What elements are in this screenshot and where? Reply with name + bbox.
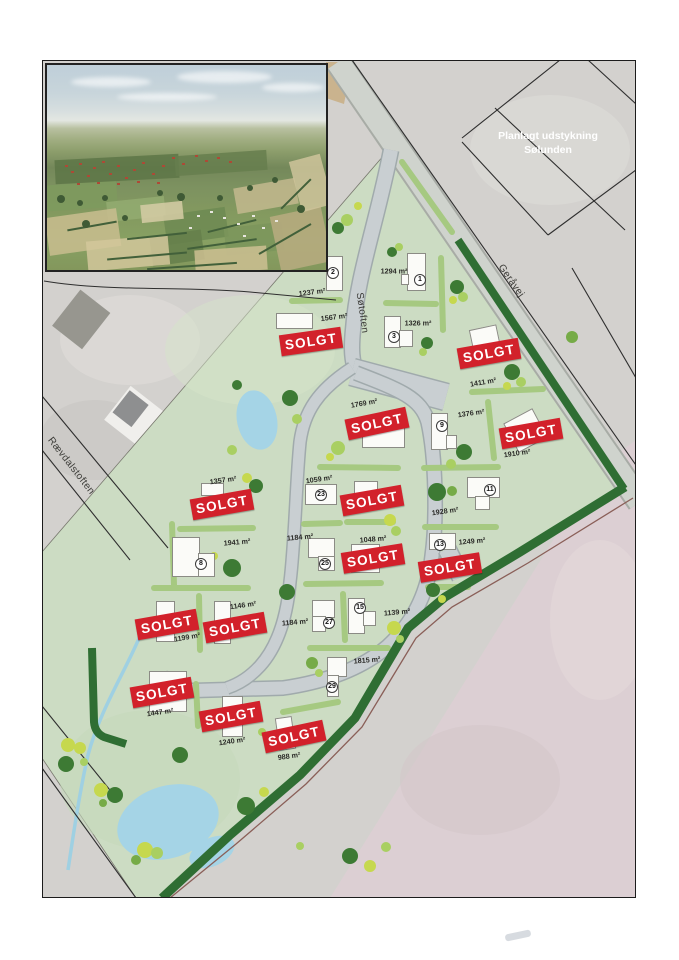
lot-area-label: 1411 m² [469, 375, 497, 388]
lot-area-label: 988 m² [277, 750, 301, 762]
lot-area-label: 1769 m² [350, 396, 378, 410]
photo-red-roof [93, 167, 96, 169]
site-plan-page: Planlagt udstykning Sølunden SøtoftenGer… [0, 0, 679, 960]
photo-red-roof [109, 173, 112, 175]
photo-red-roof [152, 173, 155, 175]
photo-tree [247, 185, 253, 191]
lot-number-badge: 8 [195, 558, 207, 570]
photo-tree [217, 195, 223, 201]
photo-house-dot [197, 215, 200, 217]
photo-red-roof [172, 157, 175, 159]
photo-red-roof [77, 183, 80, 185]
plan-title-line1: Planlagt udstykning [498, 129, 598, 143]
lot-area-label: 1357 m² [209, 474, 237, 487]
solgt-banner: SOLGT [279, 326, 343, 355]
photo-red-roof [79, 163, 82, 165]
photo-field-patch [233, 178, 299, 214]
house-footprint [401, 274, 409, 285]
solgt-banner: SOLGT [340, 484, 405, 515]
photo-cloud [177, 71, 272, 83]
photo-house-dot [275, 220, 278, 222]
photo-tree [122, 215, 128, 221]
lot-area-label: 1139 m² [383, 606, 410, 617]
photo-tree [77, 200, 83, 206]
lot-area-label: 1184 m² [281, 616, 308, 627]
photo-red-roof [65, 165, 68, 167]
house-footprint [399, 330, 413, 347]
house-footprint [172, 537, 200, 577]
lot-area-label: 1910 m² [503, 447, 531, 460]
photo-tree [157, 190, 163, 196]
photo-tree [177, 193, 185, 201]
photo-red-roof [195, 155, 198, 157]
street-label-geravej: Geråvej [496, 262, 527, 299]
street-label-sotoften: Søtoften [354, 292, 371, 334]
lot-number-badge: 25 [319, 558, 331, 570]
aerial-photo-inset [45, 63, 328, 272]
lot-area-label: 1146 m² [229, 599, 256, 612]
lot-number-badge: 27 [323, 617, 335, 629]
lot-number-badge: 15 [354, 602, 366, 614]
lot-number-badge: 29 [326, 681, 338, 693]
photo-tree [297, 205, 305, 213]
lot-area-label: 1928 m² [431, 505, 459, 518]
solgt-banner: SOLGT [457, 337, 522, 368]
lot-area-label: 1815 m² [353, 654, 380, 665]
photo-red-roof [162, 165, 165, 167]
lot-area-label: 1376 m² [457, 407, 485, 420]
photo-house-dot [189, 227, 192, 229]
photo-field-patch [174, 150, 267, 176]
house-footprint [327, 657, 347, 677]
lot-number-badge: 9 [436, 420, 448, 432]
lot-area-label: 1294 m² [381, 267, 408, 276]
photo-red-roof [137, 181, 140, 183]
lot-area-label: 1249 m² [458, 535, 485, 546]
solgt-banner: SOLGT [199, 700, 264, 731]
lot-number-badge: 13 [434, 539, 446, 551]
photo-house-dot [237, 223, 240, 225]
lot-area-label: 1237 m² [298, 286, 326, 298]
photo-house-dot [223, 217, 226, 219]
photo-tree [57, 195, 65, 203]
photo-house-dot [210, 211, 213, 213]
photo-field-patch [54, 154, 179, 184]
house-footprint [475, 496, 490, 510]
photo-field-patch [270, 206, 328, 272]
lot-number-badge: 23 [315, 489, 327, 501]
lot-number-badge: 3 [388, 331, 400, 343]
photo-red-roof [71, 171, 74, 173]
photo-house-dot [262, 227, 265, 229]
solgt-banner: SOLGT [418, 552, 483, 582]
house-footprint [446, 435, 457, 449]
photo-tree [272, 177, 278, 183]
house-footprint [308, 538, 335, 558]
lot-area-label: 1048 m² [359, 533, 386, 544]
house-footprint [276, 313, 313, 329]
photo-red-roof [117, 165, 120, 167]
photo-tree [82, 220, 90, 228]
photo-red-roof [229, 161, 232, 163]
plan-title-line2: Sølunden [498, 143, 598, 157]
street-label-raevdalstoften: Rævdalstoften [45, 435, 97, 497]
photo-red-roof [97, 182, 100, 184]
lot-area-label: 1941 m² [223, 536, 250, 547]
plan-title: Planlagt udstykning Sølunden [498, 129, 598, 157]
photo-red-roof [182, 163, 185, 165]
house-footprint [363, 611, 376, 626]
photo-house-dot [243, 235, 246, 237]
photo-field-patch [194, 246, 267, 272]
photo-cloud [117, 93, 217, 101]
photo-cloud [262, 83, 324, 92]
lot-number-badge: 1 [414, 274, 426, 286]
photo-red-roof [157, 182, 160, 184]
photo-red-roof [102, 161, 105, 163]
photo-red-roof [87, 175, 90, 177]
photo-house-dot [252, 215, 255, 217]
photo-red-roof [217, 157, 220, 159]
lot-area-label: 1567 m² [320, 311, 348, 323]
photo-red-roof [125, 177, 128, 179]
photo-red-roof [117, 183, 120, 185]
lot-area-label: 1326 m² [405, 319, 432, 328]
lot-number-badge: 2 [327, 267, 339, 279]
solgt-banner: SOLGT [203, 611, 268, 642]
photo-red-roof [142, 162, 145, 164]
photo-tree [102, 195, 108, 201]
photo-red-roof [205, 160, 208, 162]
photo-cloud [71, 77, 151, 87]
photo-red-roof [133, 169, 136, 171]
solgt-banner: SOLGT [190, 488, 255, 519]
lot-number-badge: 11 [484, 484, 496, 496]
